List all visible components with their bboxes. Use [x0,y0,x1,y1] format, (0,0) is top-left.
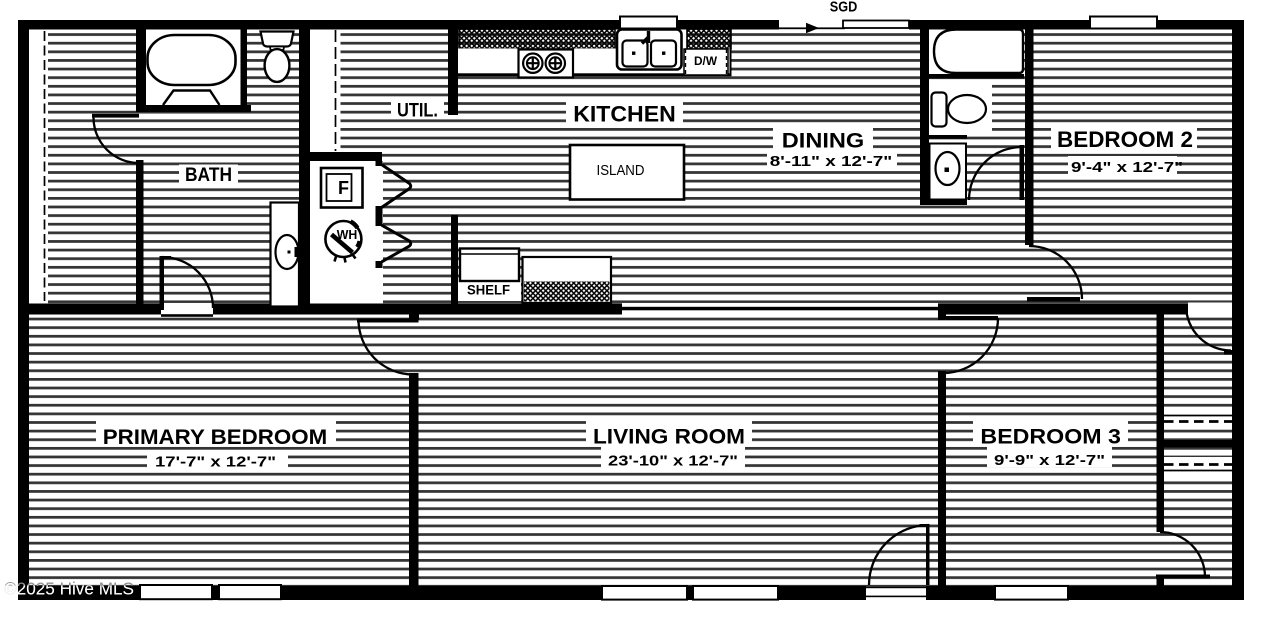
svg-text:D/W: D/W [694,56,717,68]
svg-text:ISLAND: ISLAND [597,163,645,179]
svg-text:SGD: SGD [830,0,858,16]
svg-text:SHELF: SHELF [467,282,510,298]
svg-text:DINING: DINING [782,130,865,153]
svg-text:BATH: BATH [185,165,232,186]
svg-text:PRIMARY BEDROOM: PRIMARY BEDROOM [103,425,328,449]
svg-text:F: F [338,178,349,198]
svg-text:UTIL.: UTIL. [397,101,438,122]
svg-text:9'-9" x 12'-7": 9'-9" x 12'-7" [994,453,1105,469]
svg-text:BEDROOM 3: BEDROOM 3 [980,425,1121,449]
svg-text:23'-10" x 12'-7": 23'-10" x 12'-7" [608,454,738,470]
svg-text:BEDROOM 2: BEDROOM 2 [1057,127,1193,152]
svg-text:17'-7" x 12'-7": 17'-7" x 12'-7" [155,455,276,471]
svg-text:LIVING ROOM: LIVING ROOM [593,425,745,449]
svg-text:9'-4" x 12'-7": 9'-4" x 12'-7" [1071,159,1183,176]
svg-text:KITCHEN: KITCHEN [573,102,676,127]
svg-text:8'-11" x 12'-7": 8'-11" x 12'-7" [770,154,893,170]
